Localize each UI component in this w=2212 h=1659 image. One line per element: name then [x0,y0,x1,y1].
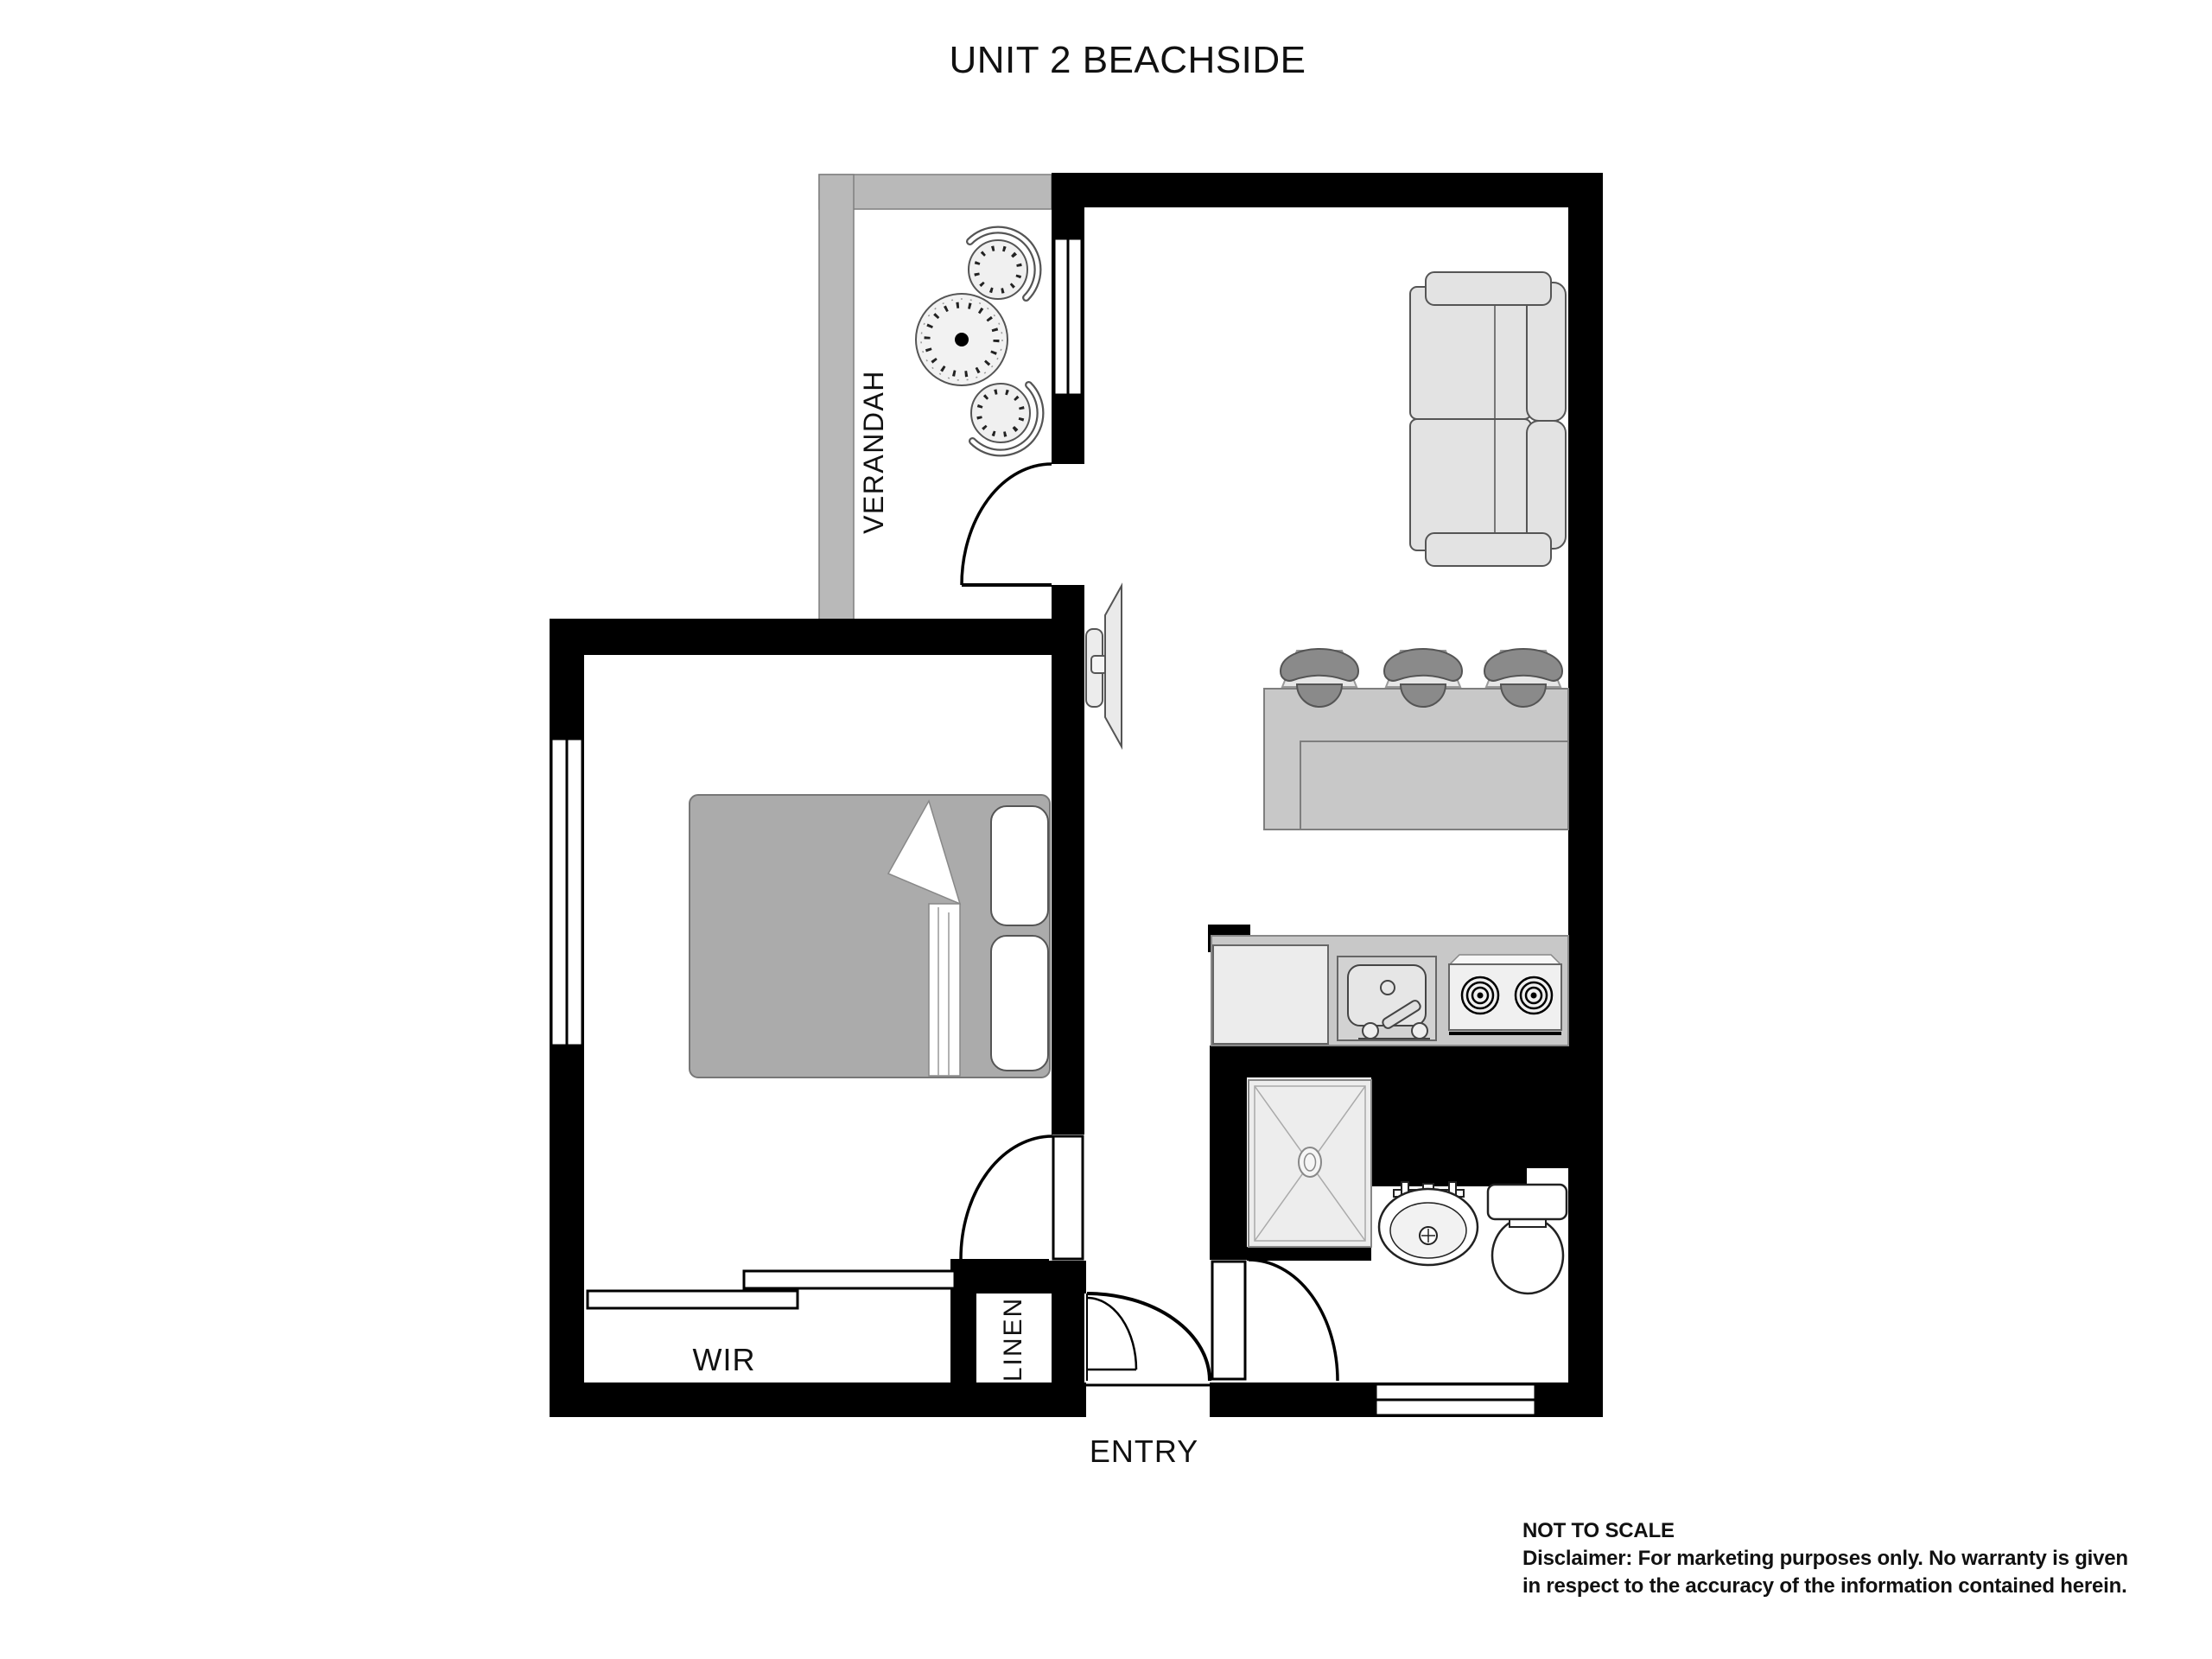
bathroom-basin [1379,1182,1478,1265]
verandah-door-opening [1049,464,1087,585]
disclaimer-line-1: Disclaimer: For marketing purposes only.… [1522,1547,2128,1570]
fridge [1213,945,1328,1044]
sofa-seat-top [1410,287,1531,419]
window-bathroom [1376,1384,1535,1415]
verandah-wall-left [819,175,854,620]
entry-opening [1086,1382,1210,1417]
wir-label: WIR [693,1342,756,1377]
wall-right [1568,173,1603,1417]
bar-stools [1281,649,1562,707]
pillow-bottom [991,936,1048,1071]
wall-bathroom-west [1210,1046,1247,1262]
plan-title: UNIT 2 BEACHSIDE [949,39,1306,81]
breakfast-bar [1264,689,1568,829]
wall-wir-band [950,1259,1086,1294]
sofa-back-bottom [1527,421,1566,549]
floorplan-drawing: UNIT 2 BEACHSIDE VERANDAH WIR LINEN ENTR… [0,0,2212,1659]
shower-drain [1299,1147,1321,1177]
bedroom-door-leaf [1053,1136,1083,1259]
bathroom-door-leaf [1212,1262,1245,1379]
wall-bathroom-north-a [1371,1077,1568,1168]
pillow-top [991,806,1048,925]
sink-tap-right [1412,1023,1427,1039]
sofa-armrest-bottom [1426,533,1551,566]
toilet-bowl [1492,1217,1563,1294]
tv-screen [1105,586,1122,747]
outdoor-table-center [955,333,969,346]
not-to-scale-text: NOT TO SCALE [1522,1519,1675,1542]
sink-tap-left [1363,1023,1378,1039]
kitchen-bench [1211,936,1568,1046]
shower [1249,1080,1371,1247]
entry-label: ENTRY [1090,1433,1198,1469]
cooktop [1449,955,1561,1033]
sofa-armrest-top [1426,272,1551,305]
floorplan-page: UNIT 2 BEACHSIDE VERANDAH WIR LINEN ENTR… [0,0,2212,1659]
disclaimer-line-2: in respect to the accuracy of the inform… [1522,1574,2127,1598]
verandah-label: VERANDAH [858,370,889,534]
wall-kitchen-bottom [1210,1046,1570,1077]
sofa-seat-bottom [1410,419,1531,550]
sofa [1410,272,1566,566]
linen-label: LINEN [999,1297,1027,1382]
burner-right [1516,977,1552,1014]
wall-bedroom-top [550,619,1084,655]
bar-counter-inner [1300,741,1568,829]
window-verandah-living [1054,238,1082,395]
wall-linen-left [950,1294,976,1417]
toilet [1488,1185,1567,1294]
wall-under-shower [1247,1247,1371,1261]
window-bedroom [551,739,582,1046]
kitchen-sink [1338,957,1436,1040]
burner-left [1462,977,1498,1014]
bed [690,795,1050,1077]
bed-sheet-strip [929,904,960,1076]
wall-top [1052,173,1603,207]
sliding-door-panel-left [588,1291,798,1308]
sliding-door-panel-right [744,1271,955,1288]
sink-plughole [1381,981,1395,995]
toilet-cistern [1488,1185,1567,1219]
